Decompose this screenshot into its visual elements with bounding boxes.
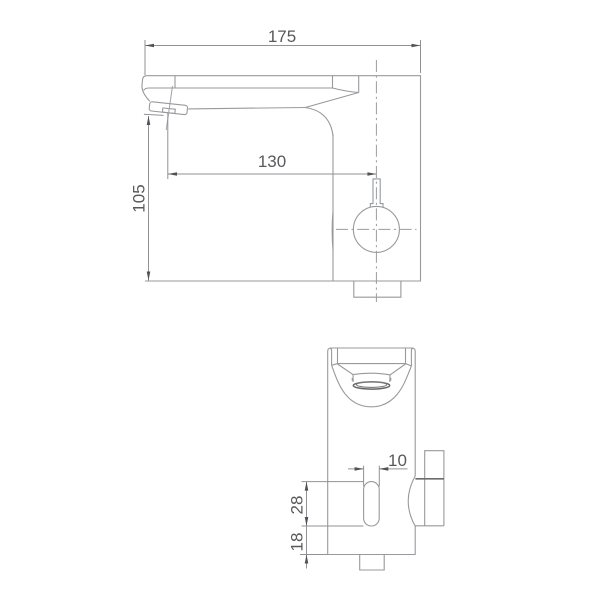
svg-text:28: 28 xyxy=(288,496,307,515)
svg-text:105: 105 xyxy=(130,184,149,212)
svg-text:175: 175 xyxy=(268,27,296,46)
svg-text:18: 18 xyxy=(288,533,307,552)
svg-text:10: 10 xyxy=(388,451,407,470)
svg-text:130: 130 xyxy=(258,152,286,171)
